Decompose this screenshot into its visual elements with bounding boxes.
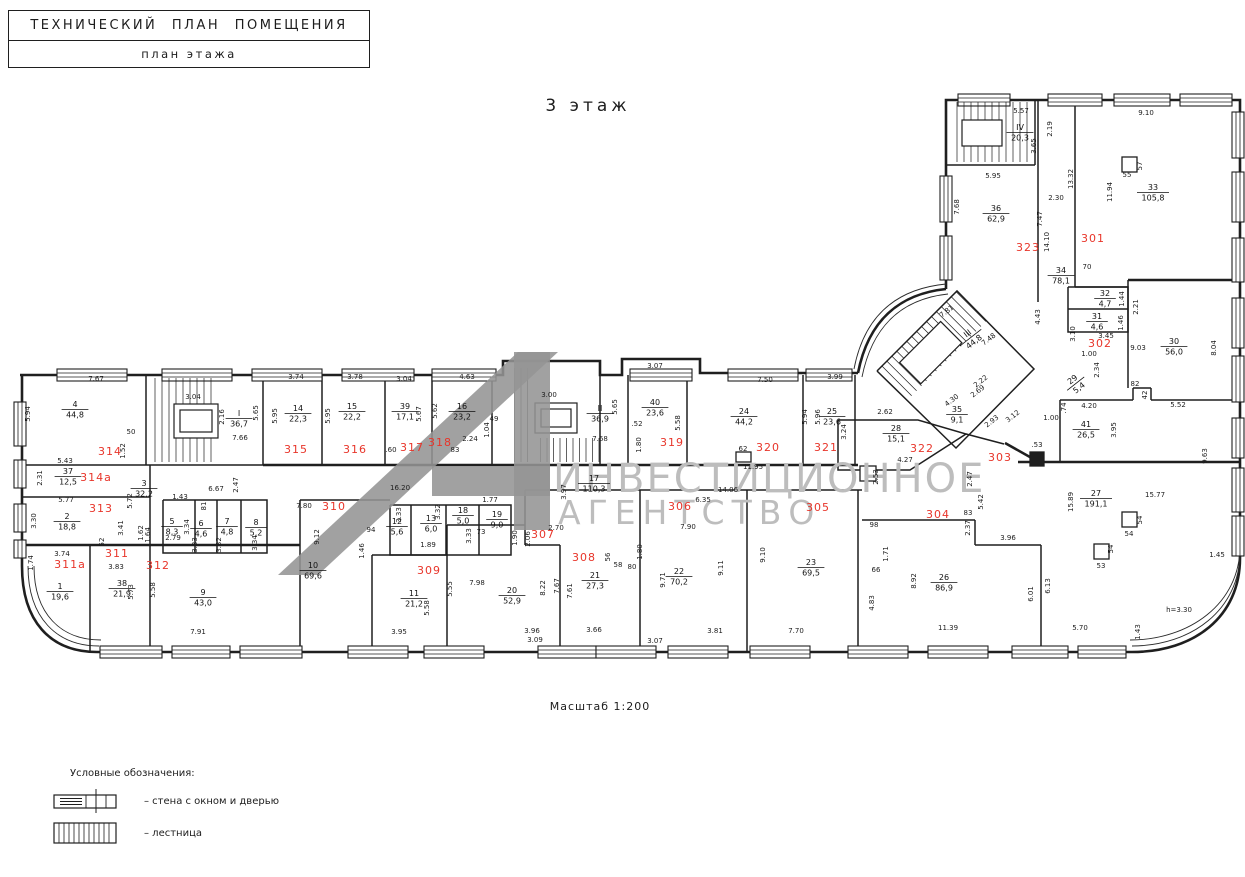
dimension-label: 5.94: [801, 409, 809, 425]
dimension-label: 54: [1107, 544, 1115, 553]
legend-item-stairs: – лестница: [52, 819, 279, 847]
dimension-label: 82: [1131, 380, 1140, 388]
dimension-label: .53: [1031, 441, 1042, 449]
dimension-label: 1.74: [27, 555, 35, 571]
svg-text:16: 16: [457, 402, 467, 411]
floor-title: 3 этаж: [488, 96, 688, 116]
room-area-label: 2815,1: [883, 424, 910, 444]
dimension-label: 3.83: [108, 563, 124, 571]
dimension-label: 6.35: [695, 496, 711, 504]
window-icon: [252, 369, 322, 381]
dimension-label: 5.58: [674, 415, 682, 431]
svg-text:15: 15: [347, 402, 357, 411]
column: [1030, 452, 1044, 466]
dimension-label: 8.22: [539, 580, 547, 596]
window-icon: [1232, 238, 1244, 282]
dimension-label: .60: [385, 446, 396, 454]
svg-text:31: 31: [1092, 312, 1102, 321]
window-icon: [1232, 172, 1244, 222]
dimension-label: 1.43: [172, 493, 188, 501]
svg-text:40: 40: [650, 398, 660, 407]
legend-item-wall-label: – стена с окном и дверью: [144, 796, 279, 807]
room-area-label: 324,7: [1094, 289, 1116, 309]
svg-text:14: 14: [293, 404, 303, 413]
dimension-label: 1.89: [420, 541, 436, 549]
svg-text:41: 41: [1081, 420, 1091, 429]
room-number: 305: [806, 501, 830, 514]
dimension-label: 3.33: [465, 528, 473, 544]
dimension-label: 3.04: [185, 393, 201, 401]
scale-label: Масштаб 1:200: [500, 700, 700, 713]
dimension-label: 3.95: [391, 628, 407, 636]
dimension-label: 3.33: [395, 507, 403, 523]
svg-text:17,1: 17,1: [396, 413, 414, 422]
svg-text:22: 22: [674, 567, 684, 576]
dimension-label: .52: [631, 420, 642, 428]
window-icon: [240, 646, 302, 658]
dimension-label: 9.10: [759, 547, 767, 563]
dimension-label: 5.95: [985, 172, 1001, 180]
window-icon: [940, 236, 952, 280]
dimension-label: 7.67: [88, 375, 104, 383]
svg-text:70,2: 70,2: [670, 578, 688, 587]
dimension-label: 5.43: [57, 457, 73, 465]
svg-text:86,9: 86,9: [935, 584, 953, 593]
dimension-label: 6.01: [1027, 586, 1035, 602]
svg-text:9,1: 9,1: [951, 416, 964, 425]
dimension-label: 3.81: [707, 627, 723, 635]
svg-text:II: II: [598, 404, 603, 413]
room-number: 310: [322, 500, 346, 513]
dimension-label: 7.68: [592, 435, 608, 443]
svg-text:22,2: 22,2: [343, 413, 361, 422]
dimension-label: 9.63: [1201, 448, 1209, 464]
dimension-label: 3.33: [191, 537, 199, 553]
room-number: 319: [660, 436, 684, 449]
svg-text:78,1: 78,1: [1052, 277, 1070, 286]
dimension-label: 1.46: [358, 543, 366, 559]
dimension-label: 1.00: [1081, 350, 1097, 358]
elevator-box: [962, 120, 1002, 146]
svg-text:18,8: 18,8: [58, 523, 76, 532]
elevator-box: [900, 322, 962, 384]
dimension-label: 50: [127, 428, 136, 436]
svg-text:19: 19: [492, 510, 502, 519]
dimension-label: 2.93: [983, 413, 1000, 429]
room-number: 312: [146, 559, 170, 572]
dimension-label: 2.37: [964, 520, 972, 536]
svg-text:44,2: 44,2: [735, 418, 753, 427]
dimension-label: 3.00: [541, 391, 557, 399]
window-icon: [1232, 418, 1244, 458]
title-block: ТЕХНИЧЕСКИЙ ПЛАН ПОМЕЩЕНИЯ план этажа: [8, 10, 370, 68]
window-icon: [596, 646, 656, 658]
dimension-label: 1.80: [636, 544, 644, 560]
svg-text:2: 2: [64, 512, 69, 521]
dimension-label: 7.98: [469, 579, 485, 587]
window-icon: [1180, 94, 1232, 106]
dimension-label: 3.04: [396, 375, 412, 383]
elevator-box: [180, 410, 212, 432]
svg-text:43,0: 43,0: [194, 599, 212, 608]
dimension-label: 1.52: [119, 443, 127, 459]
dimension-label: 7.50: [757, 376, 773, 384]
room-number: 314а: [80, 471, 112, 484]
dimension-label: 4.63: [459, 373, 475, 381]
room-area-label: 33105,8: [1137, 183, 1169, 203]
dimension-label: 7.67: [553, 578, 561, 594]
agency-logo-icon: [432, 466, 550, 496]
dimension-label: 5.67: [415, 406, 423, 422]
svg-text:24: 24: [739, 407, 749, 416]
svg-text:26,5: 26,5: [1077, 431, 1095, 440]
dimension-label: 3.41: [117, 520, 125, 536]
svg-text:23,6: 23,6: [823, 418, 841, 427]
dimension-label: 5.55: [446, 581, 454, 597]
room-area-label: 1522,2: [339, 402, 366, 422]
dimension-label: 2.16: [218, 409, 226, 425]
dimension-label: 3.97: [560, 484, 568, 500]
dimension-label: 15.89: [1067, 492, 1075, 512]
room-area-label: 3478,1: [1048, 266, 1075, 286]
dimension-label: 2.34: [1093, 362, 1101, 378]
svg-text:6: 6: [198, 519, 203, 528]
dimension-label: 2.31: [36, 470, 44, 486]
svg-text:36: 36: [991, 204, 1001, 213]
dimension-label: 3.78: [347, 373, 363, 381]
svg-text:7: 7: [224, 517, 229, 526]
dimension-label: 2.21: [1132, 299, 1140, 315]
window-icon: [1232, 356, 1244, 402]
svg-text:30: 30: [1169, 337, 1179, 346]
dimension-label: 3.32: [215, 537, 223, 553]
room-area-label: 2052,9: [499, 586, 526, 606]
svg-text:35: 35: [952, 405, 962, 414]
svg-text:62,9: 62,9: [987, 215, 1005, 224]
dimension-label: 98: [870, 521, 879, 529]
dimension-label: 7.66: [232, 434, 248, 442]
room-area-label: 314,6: [1086, 312, 1108, 332]
dimension-label: 8.04: [1210, 340, 1218, 356]
dimension-label: 6.13: [1044, 578, 1052, 594]
dimension-label: 42: [1141, 391, 1149, 400]
column: [1122, 157, 1137, 172]
svg-text:15,1: 15,1: [887, 435, 905, 444]
dimension-label: 5.65: [252, 405, 260, 421]
room-number: 306: [668, 500, 692, 513]
room-area-label: 185,0: [452, 506, 474, 526]
dimension-label: 7.68: [953, 199, 961, 215]
window-icon: [940, 176, 952, 222]
dimension-label: 9.03: [1130, 344, 1146, 352]
dimension-label: 54: [1125, 530, 1134, 538]
dimension-label: 2.62: [877, 408, 893, 416]
room-number: 321: [814, 441, 838, 454]
svg-text:6,0: 6,0: [425, 525, 438, 534]
column: [1122, 512, 1137, 527]
svg-text:5,6: 5,6: [391, 528, 404, 537]
room-number: 301: [1081, 232, 1105, 245]
legend: Условные обозначения: – стена с окном и …: [52, 768, 279, 851]
room-number: 322: [910, 442, 934, 455]
dimension-label: 5.72: [126, 493, 134, 509]
svg-text:23: 23: [806, 558, 816, 567]
dimension-label: 56: [604, 552, 612, 561]
document-subtitle: план этажа: [9, 41, 369, 67]
dimension-label: 62: [739, 445, 748, 453]
svg-text:18: 18: [458, 506, 468, 515]
dimension-label: 5.52: [1170, 401, 1186, 409]
dimension-label: 3.66: [586, 626, 602, 634]
svg-text:20: 20: [507, 586, 517, 595]
legend-item-wall: – стена с окном и дверью: [52, 787, 279, 815]
dimension-label: 14.06: [718, 486, 739, 494]
svg-text:69,5: 69,5: [802, 569, 820, 578]
dimension-label: 3.09: [527, 636, 543, 644]
dimension-label: 4.83: [868, 595, 876, 611]
svg-text:I: I: [238, 409, 240, 418]
dimension-label: 83: [964, 509, 973, 517]
dimension-label: 7.81: [938, 303, 955, 319]
dimension-label: 3.10: [1069, 326, 1077, 342]
dimension-label: 83: [451, 446, 460, 454]
room-area-label: 3662,9: [983, 204, 1010, 224]
svg-text:56,0: 56,0: [1165, 348, 1183, 357]
window-icon: [348, 646, 408, 658]
window-icon: [928, 646, 988, 658]
dimension-label: 1.90: [511, 530, 519, 546]
window-icon: [1048, 94, 1102, 106]
svg-text:27,3: 27,3: [586, 582, 604, 591]
svg-text:1: 1: [57, 582, 62, 591]
dimension-label: 3.07: [647, 362, 663, 370]
svg-text:5,0: 5,0: [457, 517, 470, 526]
room-area-label: 3056,0: [1161, 337, 1188, 357]
svg-text:4,6: 4,6: [195, 530, 208, 539]
svg-text:25: 25: [827, 407, 837, 416]
watermark: ИНВЕСТИЦИОННОЕАГЕНТСТВО: [278, 352, 985, 575]
room-area-label: 74,8: [216, 517, 238, 537]
room-area-label: 3712,5: [55, 467, 82, 487]
window-icon: [1232, 516, 1244, 556]
floor-plan-drawing: ИНВЕСТИЦИОННОЕАГЕНТСТВО444,8I36,73712,53…: [0, 0, 1245, 877]
window-icon: [14, 460, 26, 488]
dimension-label: 2.53: [872, 469, 880, 485]
dimension-label: 94: [367, 526, 376, 534]
dimension-label: 5.58: [423, 600, 431, 616]
dimension-label: 2.69: [969, 383, 986, 399]
dimension-label: 1.44: [1118, 291, 1126, 307]
dimension-label: 7.91: [190, 628, 206, 636]
room-area-label: 2270,2: [666, 567, 693, 587]
room-number: 316: [343, 443, 367, 456]
dimension-label: 4.43: [1034, 309, 1042, 325]
dimension-label: 1.00: [1043, 414, 1059, 422]
svg-text:69,6: 69,6: [304, 572, 322, 581]
wall-window-door-symbol: [52, 788, 130, 814]
room-area-label: I36,7: [226, 409, 253, 429]
dimension-label: 3.95: [1110, 422, 1118, 438]
dimension-label: 7.47: [1036, 211, 1044, 227]
svg-text:26: 26: [939, 573, 949, 582]
svg-text:27: 27: [1091, 489, 1101, 498]
dimension-label: 3.24: [840, 424, 848, 440]
svg-text:28: 28: [891, 424, 901, 433]
dimension-label: 9.11: [717, 560, 725, 576]
dimension-label: 2.30: [1048, 194, 1064, 202]
dimension-label: 5.73: [127, 584, 135, 600]
dimension-label: 2.24: [462, 435, 478, 443]
dimension-label: 16.20: [390, 484, 410, 492]
dimension-label: 52: [98, 538, 106, 547]
svg-text:9: 9: [200, 588, 205, 597]
dimension-label: 3.99: [827, 373, 843, 381]
dimension-label: 73: [477, 528, 486, 536]
svg-text:38: 38: [117, 579, 127, 588]
svg-text:22,3: 22,3: [289, 415, 307, 424]
svg-text:4,7: 4,7: [1099, 300, 1112, 309]
dimension-label: 1.64: [144, 527, 152, 543]
svg-text:23,2: 23,2: [453, 413, 471, 422]
svg-text:4: 4: [72, 400, 77, 409]
legend-item-stairs-label: – лестница: [144, 828, 202, 839]
room-number: 309: [417, 564, 441, 577]
dimension-label: 9.10: [1138, 109, 1154, 117]
dimension-label: 3.74: [288, 373, 304, 381]
dimension-label: 57: [1136, 162, 1144, 171]
dimension-label: 3.96: [1000, 534, 1016, 542]
dimension-label: 1.43: [1134, 624, 1142, 640]
room-area-label: 2523,6: [819, 407, 846, 427]
room-number: 303: [988, 451, 1012, 464]
svg-text:3: 3: [141, 479, 146, 488]
dimension-label: 2.47: [966, 471, 974, 487]
dimension-label: 3.34: [251, 535, 259, 551]
dimension-label: 9.71: [659, 572, 667, 588]
windows: [14, 94, 1244, 658]
svg-text:39: 39: [400, 402, 410, 411]
svg-text:32,2: 32,2: [135, 490, 153, 499]
dimension-label: 5.57: [1013, 107, 1029, 115]
window-icon: [1114, 94, 1170, 106]
dimension-label: 5.95: [324, 408, 332, 424]
dimension-label: 2.19: [1046, 121, 1054, 137]
room-area-label: 943,0: [190, 588, 217, 608]
window-icon: [14, 540, 26, 558]
svg-text:5: 5: [169, 517, 174, 526]
dimension-label: 66: [872, 566, 881, 574]
dimension-label: 5.77: [58, 496, 74, 504]
dimension-label: 70: [1083, 263, 1092, 271]
svg-text:105,8: 105,8: [1142, 194, 1165, 203]
document-title: ТЕХНИЧЕСКИЙ ПЛАН ПОМЕЩЕНИЯ: [9, 11, 369, 41]
dimension-label: 1.04: [483, 422, 491, 438]
dimension-label: 3.34: [183, 519, 191, 535]
dimension-label: 1.80: [635, 437, 643, 453]
dimension-label: 2.70: [548, 524, 564, 532]
dimension-label: 3.12: [1004, 408, 1021, 424]
svg-text:19,6: 19,6: [51, 593, 69, 602]
svg-text:10: 10: [308, 561, 318, 570]
dimension-label: 11.39: [938, 624, 958, 632]
room-area-label: 85,2: [245, 518, 267, 538]
staircases: [155, 102, 1027, 462]
svg-text:17: 17: [589, 474, 599, 483]
dimension-label: 7.70: [788, 627, 804, 635]
svg-text:32: 32: [1100, 289, 1110, 298]
svg-text:37: 37: [63, 467, 73, 476]
room-number: 317: [400, 441, 424, 454]
dimension-label: 1.45: [1209, 551, 1225, 559]
dimension-label: 2.47: [232, 477, 240, 493]
dimension-label: 4.20: [1081, 402, 1097, 410]
room-area-label: 64,6: [190, 519, 212, 539]
dimension-label: 3.74: [54, 550, 70, 558]
window-icon: [630, 369, 692, 381]
dimension-label: 2.79: [165, 534, 181, 542]
dimension-label: 5.95: [271, 408, 279, 424]
svg-text:23,6: 23,6: [646, 409, 664, 418]
dimension-label: 81: [200, 502, 208, 511]
room-number: 304: [926, 508, 950, 521]
svg-text:IV: IV: [1016, 123, 1024, 132]
room-area-label: 119,6: [47, 582, 74, 602]
agency-logo-icon: [514, 352, 550, 530]
dimension-label: 11.95: [743, 463, 763, 471]
dimension-label: 5.94: [24, 406, 32, 422]
dimension-label: 8.92: [910, 573, 918, 589]
svg-text:21: 21: [590, 571, 600, 580]
svg-text:33: 33: [1148, 183, 1158, 192]
window-icon: [1012, 646, 1068, 658]
dimension-label: 54: [1136, 515, 1144, 524]
dimension-label: 49: [490, 415, 499, 423]
dimension-label: 7.80: [296, 502, 312, 510]
window-icon: [14, 504, 26, 532]
svg-text:20,3: 20,3: [1011, 134, 1029, 143]
svg-text:191,1: 191,1: [1085, 500, 1108, 509]
room-area-label: 199,0: [486, 510, 508, 530]
dimension-label: 58: [614, 561, 623, 569]
dimension-label: 5.65: [611, 399, 619, 415]
window-icon: [958, 94, 1010, 106]
room-number: 323: [1016, 241, 1040, 254]
room-number: 320: [756, 441, 780, 454]
legend-heading: Условные обозначения:: [70, 768, 279, 779]
dimension-label: 1.46: [1117, 315, 1125, 331]
svg-text:34: 34: [1056, 266, 1066, 275]
dimension-label: 7.48: [980, 331, 997, 347]
dimension-label: 1.71: [882, 546, 890, 562]
room-area-label: 295,4: [1061, 369, 1090, 398]
window-icon: [668, 646, 728, 658]
window-icon: [172, 646, 230, 658]
window-icon: [538, 646, 596, 658]
dimension-label: .74: [1060, 402, 1068, 414]
dimension-label: 3.30: [30, 513, 38, 529]
room-area-label: 2127,3: [582, 571, 609, 591]
room-area-label: 2369,5: [798, 558, 825, 578]
room-area-label: 332,2: [131, 479, 158, 499]
window-icon: [424, 646, 484, 658]
svg-text:110,3: 110,3: [583, 485, 606, 494]
dimension-label: 3.65: [1030, 138, 1038, 154]
dimension-label: 9.12: [313, 529, 321, 545]
dimension-label: 11.94: [1106, 181, 1114, 202]
svg-text:8: 8: [253, 518, 258, 527]
dimension-label: 5.96: [814, 409, 822, 425]
room-number: 308: [572, 551, 596, 564]
